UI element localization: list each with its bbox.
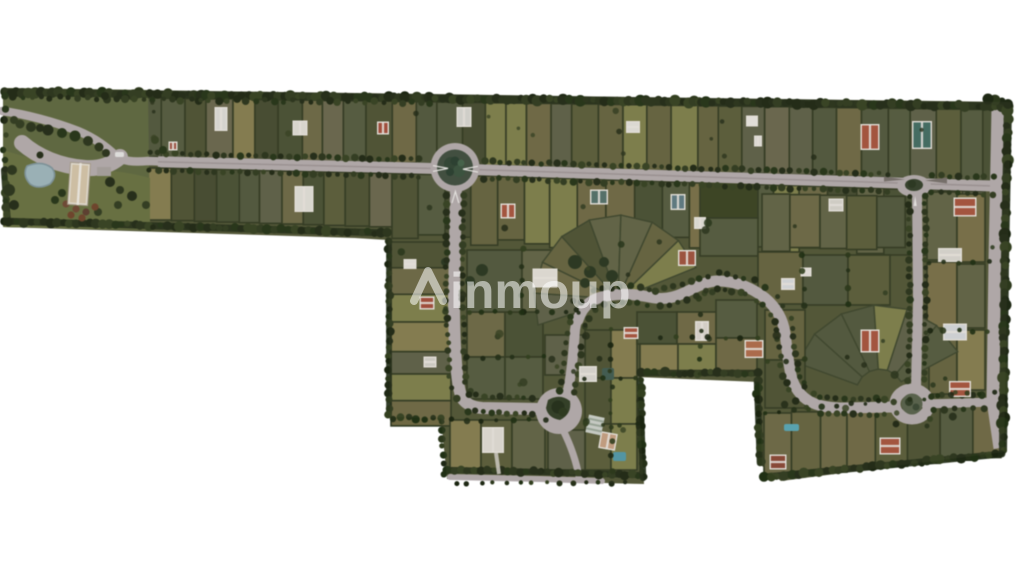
svg-text:inmoup: inmoup xyxy=(450,263,631,319)
